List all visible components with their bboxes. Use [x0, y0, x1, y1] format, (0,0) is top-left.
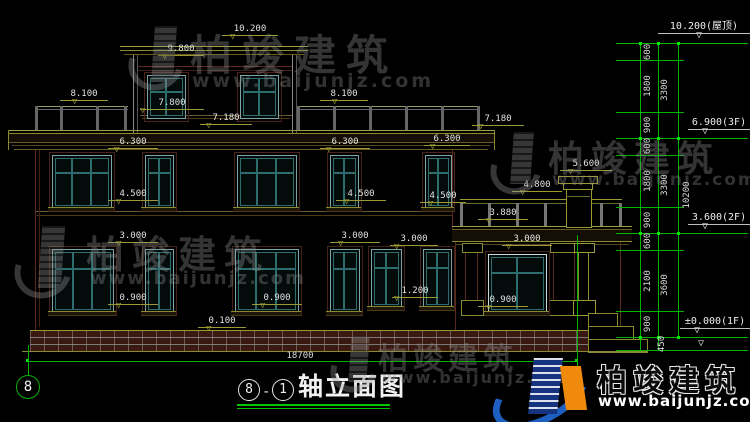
level-value: 7.800 [158, 98, 185, 108]
title-axis-end-bubble: 1 [272, 379, 294, 401]
level-value: 1.200 [401, 286, 428, 296]
level-marker: 7.180▽ [200, 113, 252, 125]
eave-cornice [8, 130, 495, 131]
floor-level-value: 6.900(3F) [692, 117, 746, 128]
level-value: 3.880 [489, 208, 516, 218]
level-triangle-icon: ▽ [332, 98, 337, 107]
parapet-post [60, 106, 63, 130]
pilaster-shaft [553, 252, 554, 300]
level-marker: 3.000▽ [390, 234, 438, 246]
watermark: 柏竣建筑 www.baijunjz.com [6, 220, 266, 300]
floor-level-value: 3.600(2F) [692, 212, 746, 223]
dim-value: 3300 [660, 70, 670, 110]
level-value: 3.000 [513, 234, 540, 244]
railing-post [544, 203, 547, 226]
level-marker: 7.180▽ [472, 114, 524, 126]
level-triangle-icon: ▽ [430, 143, 435, 152]
floor-level-marker: 10.200(屋顶)▽ [658, 21, 750, 34]
dim-node [639, 232, 642, 235]
window-sill [484, 311, 549, 316]
floor-level-marker: 3.600(2F)▽ [688, 212, 750, 225]
window-sill [419, 306, 454, 311]
level-marker: 7.800▽ [140, 98, 204, 110]
brand-logo-icon [151, 26, 177, 82]
parapet-post [333, 106, 336, 130]
parapet-post [405, 106, 408, 130]
level-marker: 6.300▽ [108, 137, 158, 149]
level-marker: 4.500▽ [108, 189, 158, 201]
railing-rail [460, 203, 622, 204]
level-value: 6.300 [331, 137, 358, 147]
level-marker: 3.000▽ [330, 231, 380, 243]
level-triangle-icon: ▽ [486, 304, 491, 313]
watermark-url-text: www.baijunjz.com [192, 70, 434, 92]
level-value: 6.300 [433, 134, 460, 144]
watermark-url-text: www.baijunjz.com [552, 170, 750, 190]
dim-value: 600 [643, 221, 653, 261]
string-course [37, 215, 453, 216]
level-triangle-icon: ▽ [428, 200, 433, 209]
level-ext-line [684, 43, 748, 44]
pilaster-shaft [477, 252, 478, 300]
level-ext-line [684, 350, 748, 351]
level-marker: 8.100▽ [60, 89, 108, 101]
window [423, 249, 452, 308]
dim-value: 900 [643, 304, 653, 344]
level-value: 7.180 [484, 114, 511, 124]
level-triangle-icon: ▽ [338, 240, 343, 249]
level-triangle-icon: ▽ [114, 146, 119, 155]
level-triangle-icon: ▽ [260, 302, 265, 311]
level-triangle-icon: ▽ [344, 198, 349, 207]
level-triangle-icon: ▽ [116, 198, 121, 207]
level-marker: 3.000▽ [502, 234, 552, 246]
dim-tick [616, 350, 684, 351]
pilaster-shaft [574, 252, 575, 300]
level-triangle-icon: ▽ [72, 98, 77, 107]
railing-post [600, 203, 603, 226]
window [52, 155, 112, 209]
watermark: 柏竣建筑 www.baijunjz.com [115, 20, 385, 98]
parapet-post [96, 106, 99, 130]
level-triangle-icon: ▽ [140, 107, 145, 116]
parapet-post [297, 106, 300, 130]
window-sill [367, 306, 404, 311]
level-value: 3.000 [400, 234, 427, 244]
parapet-rail [35, 109, 128, 110]
brand-logo-icon [510, 132, 534, 184]
window-sill [326, 207, 361, 212]
dim-value: 3600 [660, 265, 670, 305]
eave-cornice [12, 145, 490, 146]
eave-cornice [14, 149, 488, 150]
level-value: 0.900 [489, 295, 516, 305]
brand-logo-icon [348, 336, 369, 382]
level-marker: 4.500▽ [336, 189, 386, 201]
window-sill [141, 311, 176, 316]
watermark: 柏竣建筑 www.baijunjz.com [484, 128, 750, 200]
total-width-value: 18700 [270, 351, 330, 361]
parapet-post [369, 106, 372, 130]
title-underline [237, 408, 390, 409]
level-marker: 6.300▽ [424, 134, 470, 146]
parapet-post [441, 106, 444, 130]
porch-column [588, 252, 589, 300]
window-sill [48, 311, 116, 316]
title-underline [237, 404, 390, 406]
window-sill [421, 207, 454, 212]
level-marker: 3.880▽ [478, 208, 528, 220]
window-sill [326, 311, 362, 316]
level-triangle-icon: ▽ [486, 217, 491, 226]
level-triangle-icon: ▽ [326, 146, 331, 155]
level-ext-line [684, 233, 748, 234]
axis-line-left [28, 345, 29, 375]
dim-value: 2100 [643, 261, 653, 301]
porch-wall-right [620, 242, 621, 330]
elevation-drawing-canvas: 10.200▽ 9.800▽ 8.100▽ 8.100▽ 7.800▽ 7.18… [0, 0, 750, 422]
window-sill [233, 207, 299, 212]
level-value: 4.500 [119, 189, 146, 199]
level-triangle-icon: ▽ [698, 339, 704, 349]
pilaster-shaft [465, 252, 466, 300]
floor-level-value: 10.200(屋顶) [670, 21, 738, 32]
window [237, 155, 297, 209]
window-sill [141, 207, 176, 212]
window [330, 249, 360, 313]
brand-logo-icon [528, 358, 563, 414]
eave-cornice-band [8, 133, 495, 143]
dim-node [677, 42, 680, 45]
dim-node [639, 336, 642, 339]
floor-level-marker: ±0.000(1F)▽ [680, 316, 750, 329]
window-sill [48, 207, 114, 212]
level-value: 7.180 [212, 113, 239, 123]
dim-node [677, 232, 680, 235]
watermark-url-text: www.baijunjz.com [90, 268, 306, 289]
level-value: 0.100 [208, 316, 235, 326]
level-triangle-icon: ▽ [478, 123, 483, 132]
pilaster-capital [462, 243, 483, 253]
parapet-post [35, 106, 38, 130]
outdoor-level-marker: ▽ [684, 329, 746, 341]
level-triangle-icon: ▽ [116, 302, 121, 311]
railing-post [460, 203, 463, 226]
porch-wall-left [455, 242, 456, 330]
parapet-rail [297, 109, 480, 110]
level-marker: 4.500▽ [420, 191, 466, 203]
logo-url-text: www.baijunjz.com [598, 392, 750, 410]
level-value: 6.300 [119, 137, 146, 147]
level-triangle-icon: ▽ [206, 325, 211, 334]
parapet-rail [297, 106, 480, 107]
level-value: 0.900 [263, 293, 290, 303]
porch-roof-line [452, 226, 632, 227]
level-value: 4.500 [347, 189, 374, 199]
level-marker: 0.100▽ [198, 316, 246, 328]
level-triangle-icon: ▽ [696, 31, 702, 41]
level-value: 3.000 [341, 231, 368, 241]
title-axis-separator: - [262, 382, 270, 402]
dim-value: 1800 [643, 66, 653, 106]
level-triangle-icon: ▽ [506, 243, 511, 252]
axis-bubble-8: 8 [16, 375, 40, 399]
title-axis-start-bubble: 8 [238, 379, 260, 401]
level-triangle-icon: ▽ [702, 222, 708, 232]
dim-node [639, 42, 642, 45]
dim-node [677, 336, 680, 339]
level-marker: 1.200▽ [392, 286, 438, 298]
dim-node [657, 232, 660, 235]
brand-logo-icon [38, 226, 65, 288]
eave-end [8, 130, 9, 150]
dim-node [657, 42, 660, 45]
level-marker: 6.300▽ [320, 137, 370, 149]
parapet-rail [35, 106, 128, 107]
level-triangle-icon: ▽ [394, 295, 399, 304]
level-triangle-icon: ▽ [206, 122, 211, 131]
level-marker: 0.900▽ [478, 295, 528, 307]
brand-logo: 柏竣建筑 www.baijunjz.com [485, 354, 750, 422]
parapet-post [124, 106, 127, 130]
level-value: 4.500 [429, 191, 456, 201]
level-triangle-icon: ▽ [394, 243, 399, 252]
porch-column [578, 252, 579, 300]
